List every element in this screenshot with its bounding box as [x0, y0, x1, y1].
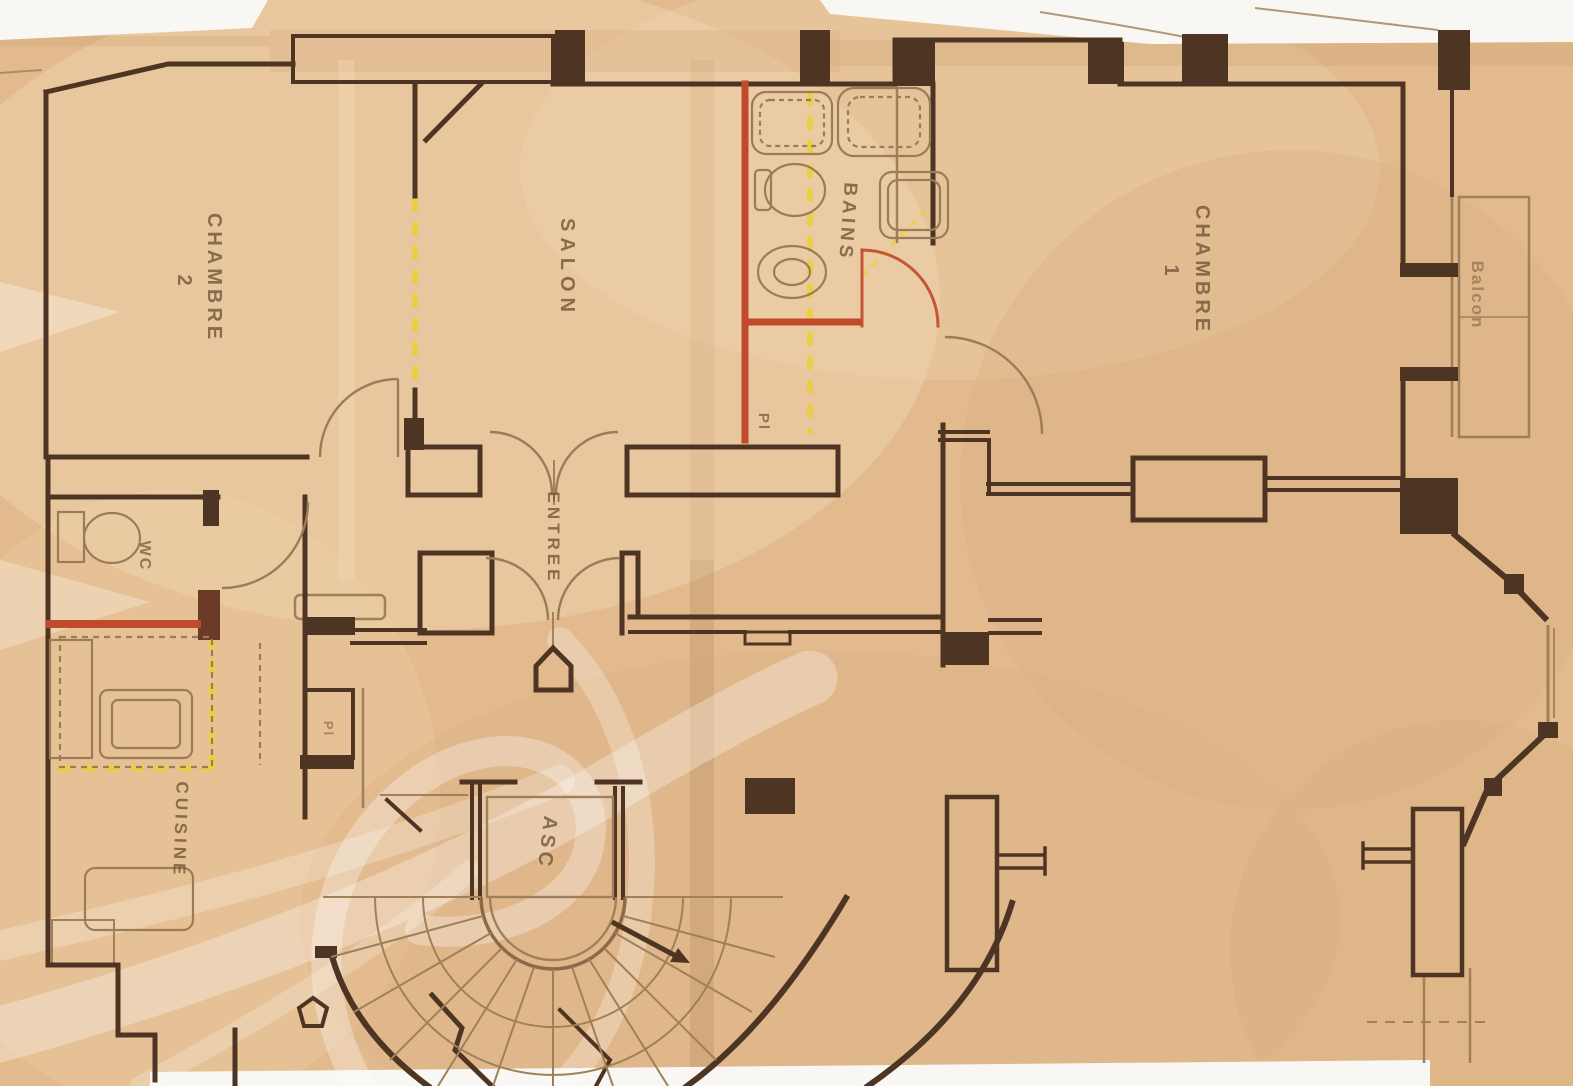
room-label-balcon: Balcon [1468, 261, 1487, 330]
closet-label-pl-hall: Pl [321, 721, 336, 737]
closet-label-pl-entree: Pl [755, 413, 772, 431]
floor-plan-svg: CHAMBRE 2 SALON BAINS CHAMBRE 1 Balcon W… [0, 0, 1573, 1086]
wall-corner-ne [1438, 30, 1470, 90]
scanned-floor-plan: CHAMBRE 2 SALON BAINS CHAMBRE 1 Balcon W… [0, 0, 1573, 1086]
room-number-chambre1: 1 [1160, 264, 1182, 279]
room-label-cuisine: CUISINE [169, 781, 191, 879]
room-label-entree: ENTREE [544, 492, 563, 585]
room-number-chambre2: 2 [173, 274, 195, 289]
room-label-salon: SALON [556, 218, 578, 318]
paper-background [0, 0, 1573, 1086]
room-label-chambre1: CHAMBRE [1191, 205, 1213, 335]
room-label-wc: WC [136, 541, 153, 572]
room-label-chambre2: CHAMBRE [203, 213, 225, 343]
